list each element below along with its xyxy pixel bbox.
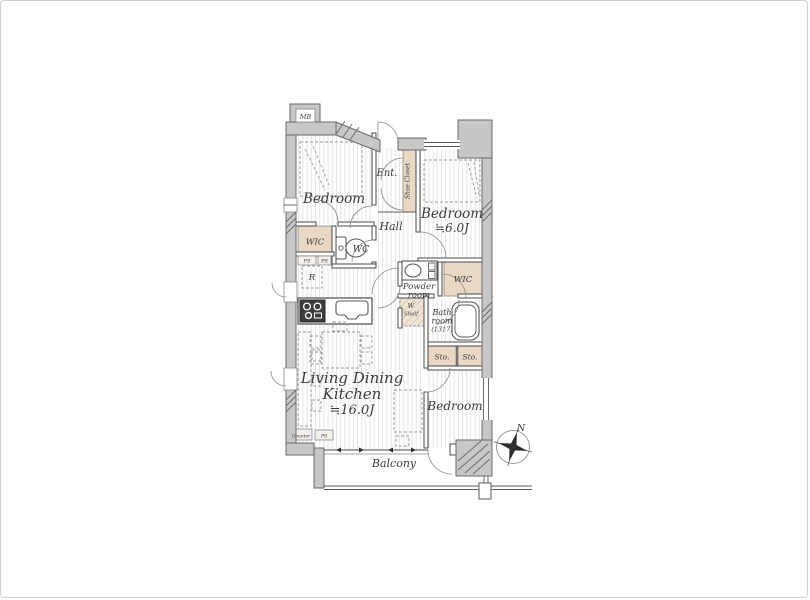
storage1-label: Sto. bbox=[435, 353, 450, 362]
bath-label-3: (1317) bbox=[431, 326, 453, 334]
ldk-size-label: ≒16.0J bbox=[329, 403, 375, 418]
left-wall-window-1 bbox=[284, 198, 297, 212]
compass-north-label: N bbox=[516, 423, 526, 434]
wall-top-ent bbox=[398, 138, 426, 150]
powder-sink-icon bbox=[402, 261, 437, 280]
left-wall-window-2 bbox=[272, 282, 297, 302]
floor-plan-drawing: MB Bedroom Ent. Shoe Closet Bedroom ≒6.0… bbox=[0, 0, 810, 600]
refrigerator-label: R bbox=[308, 273, 316, 283]
bedroom2-top-window bbox=[424, 140, 460, 149]
wall-bottom-left-step bbox=[286, 443, 314, 455]
wall-balcony-left bbox=[314, 448, 324, 488]
balcony-railing bbox=[324, 476, 532, 499]
drain-post bbox=[479, 483, 491, 499]
ent-label: Ent. bbox=[376, 168, 398, 179]
kitchen-counter bbox=[298, 298, 372, 324]
shoe-closet-label: Shoe Closet bbox=[405, 162, 412, 199]
ps-bottom-label: PS bbox=[320, 434, 327, 440]
wc-label: WC bbox=[353, 245, 369, 255]
counter-label: Counter bbox=[292, 434, 311, 440]
wic-right-label: WIC bbox=[454, 275, 473, 285]
storage2-label: Sto. bbox=[463, 353, 478, 362]
balcony-door-arc bbox=[428, 450, 452, 474]
wall-top-left bbox=[286, 122, 336, 135]
ps-upper-left-label: PS bbox=[303, 259, 311, 265]
ps-upper-right-label: PS bbox=[320, 259, 328, 265]
right-wall-window bbox=[481, 378, 493, 420]
bedroom2-floor-hatch bbox=[420, 150, 482, 258]
bedroom2-label: Bedroom bbox=[420, 206, 483, 222]
entrance-door-arc bbox=[378, 122, 398, 142]
left-wall-window-3 bbox=[271, 368, 297, 390]
balcony-label: Balcony bbox=[371, 457, 417, 470]
mb-label: MB bbox=[299, 113, 312, 121]
wall-top-right-block bbox=[458, 120, 492, 158]
hall-label: Hall bbox=[378, 220, 403, 233]
washer-label-2: Shelf bbox=[404, 312, 419, 318]
bedroom3-label: Bedroom bbox=[426, 399, 482, 413]
powder-label-2: room bbox=[408, 291, 430, 301]
compass bbox=[494, 428, 532, 466]
bathtub-icon bbox=[452, 302, 479, 340]
wic-left-label: WIC bbox=[306, 238, 325, 248]
bedroom1-label: Bedroom bbox=[302, 191, 365, 207]
ldk-label-2: Kitchen bbox=[322, 385, 382, 403]
bath-label-2: room bbox=[431, 317, 452, 326]
stove-icon bbox=[300, 300, 325, 322]
floor-plan-page: MB Bedroom Ent. Shoe Closet Bedroom ≒6.0… bbox=[0, 0, 810, 600]
bedroom2-size-label: ≒6.0J bbox=[435, 221, 470, 235]
